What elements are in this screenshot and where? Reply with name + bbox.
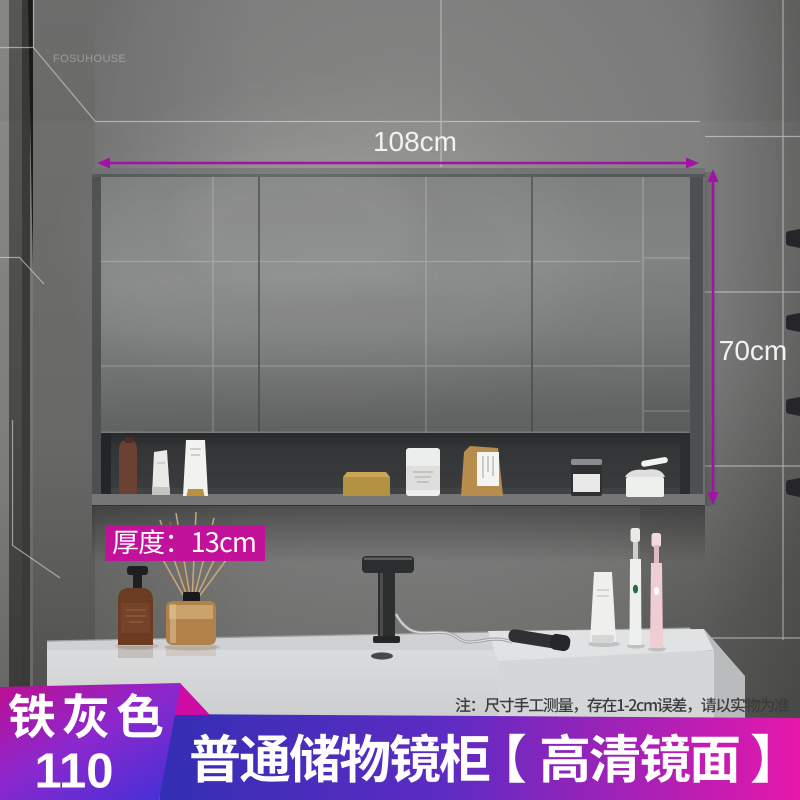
svg-text:70cm: 70cm bbox=[719, 335, 787, 366]
svg-text:110: 110 bbox=[34, 745, 113, 799]
svg-text:108cm: 108cm bbox=[373, 126, 457, 157]
svg-text:FOSUHOUSE: FOSUHOUSE bbox=[53, 53, 126, 65]
